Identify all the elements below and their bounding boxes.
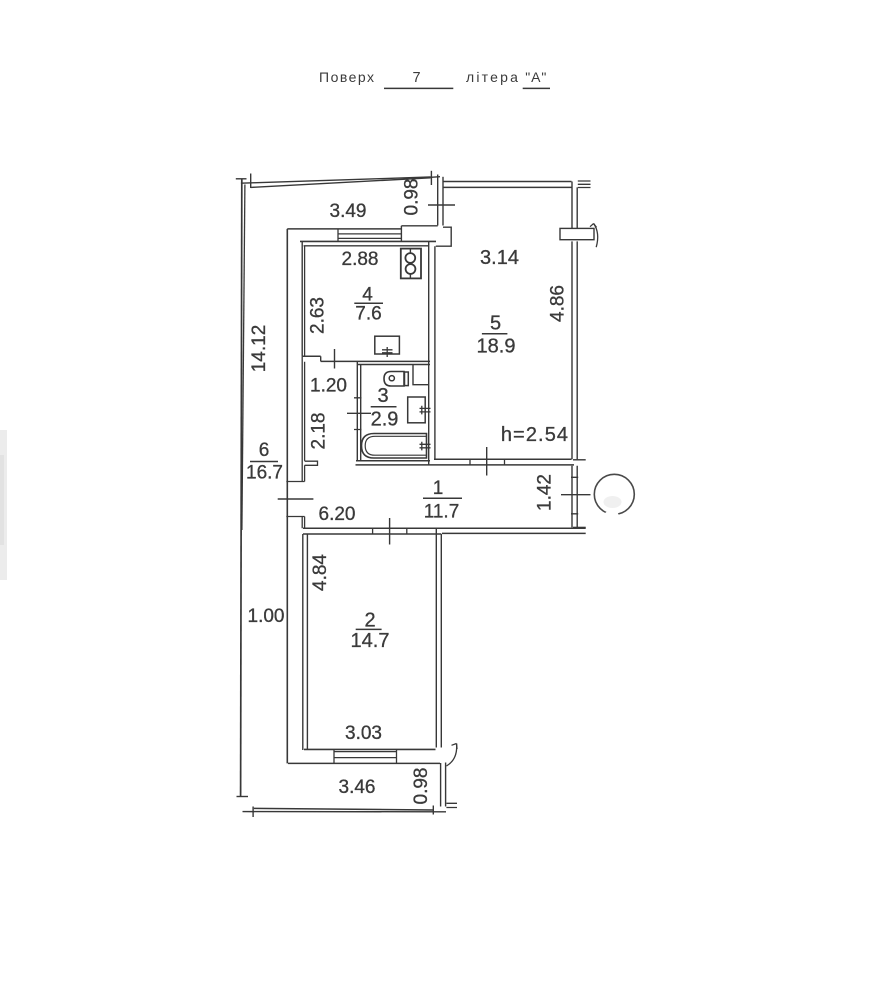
svg-text:18.9: 18.9 — [477, 336, 516, 358]
svg-text:6.20: 6.20 — [319, 504, 356, 525]
svg-text:14.7: 14.7 — [351, 630, 390, 652]
svg-text:1.42: 1.42 — [535, 474, 556, 511]
svg-text:1: 1 — [433, 478, 444, 499]
svg-text:2.63: 2.63 — [308, 297, 329, 334]
svg-text:6: 6 — [259, 440, 270, 461]
svg-text:5: 5 — [490, 313, 501, 335]
svg-text:1.00: 1.00 — [248, 606, 285, 627]
svg-text:"А": "А" — [525, 69, 547, 85]
svg-text:0.98: 0.98 — [411, 768, 432, 805]
svg-text:11.7: 11.7 — [424, 502, 460, 523]
svg-text:3.14: 3.14 — [480, 247, 519, 269]
svg-text:3.46: 3.46 — [339, 777, 376, 798]
svg-text:2.9: 2.9 — [371, 409, 399, 431]
svg-text:2.88: 2.88 — [342, 249, 379, 270]
svg-text:2: 2 — [364, 610, 375, 632]
svg-text:h=2.54: h=2.54 — [501, 424, 569, 446]
svg-text:3.49: 3.49 — [330, 201, 367, 222]
svg-text:4.86: 4.86 — [548, 285, 569, 322]
svg-text:7.6: 7.6 — [355, 304, 381, 325]
svg-text:14.12: 14.12 — [249, 325, 270, 373]
svg-text:3.03: 3.03 — [345, 723, 382, 744]
svg-text:0.98: 0.98 — [402, 179, 423, 216]
svg-text:1.20: 1.20 — [310, 376, 347, 397]
svg-text:Поверх: Поверх — [319, 69, 376, 85]
svg-text:7: 7 — [412, 70, 420, 86]
svg-text:літера: літера — [466, 69, 520, 85]
svg-text:16.7: 16.7 — [246, 463, 283, 484]
svg-text:3: 3 — [377, 385, 388, 407]
svg-text:2.18: 2.18 — [309, 413, 330, 450]
svg-text:4.84: 4.84 — [310, 554, 331, 591]
svg-text:4: 4 — [362, 285, 373, 306]
